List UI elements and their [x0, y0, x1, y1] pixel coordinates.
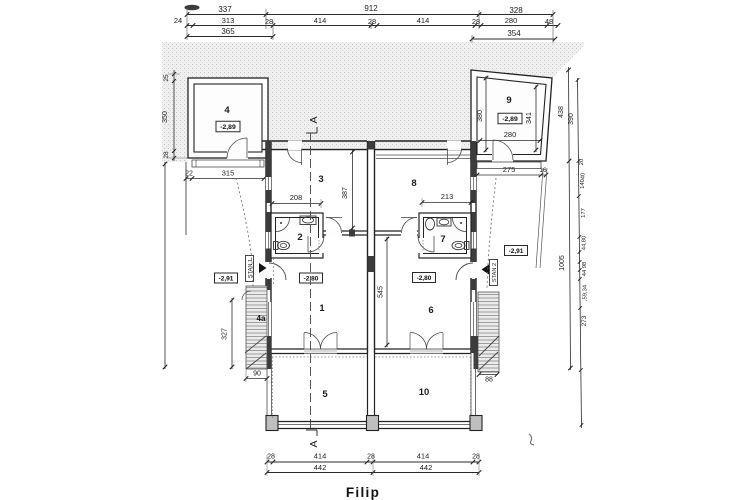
svg-text:365: 365 [221, 27, 235, 36]
svg-text:-2,80: -2,80 [304, 275, 319, 282]
svg-text:20: 20 [579, 159, 585, 165]
svg-text:387: 387 [342, 187, 349, 199]
svg-text:2: 2 [297, 232, 302, 243]
svg-text:,59,34: ,59,34 [583, 284, 589, 301]
svg-text:414: 414 [417, 16, 430, 25]
svg-text:438: 438 [558, 106, 565, 118]
svg-text:273: 273 [581, 315, 588, 326]
svg-text:28: 28 [368, 17, 376, 26]
svg-text:28: 28 [163, 151, 170, 159]
svg-text:25: 25 [163, 74, 170, 82]
svg-text:88: 88 [485, 377, 493, 384]
svg-text:3: 3 [318, 174, 323, 185]
svg-text:STAN 1: STAN 1 [248, 259, 254, 278]
svg-text:-2,91: -2,91 [509, 248, 524, 255]
svg-text:315: 315 [222, 169, 235, 178]
svg-text:328: 328 [509, 6, 523, 15]
svg-text:28: 28 [267, 454, 275, 461]
svg-text:90: 90 [253, 371, 261, 378]
svg-text:24: 24 [174, 16, 182, 25]
svg-text:44: 44 [582, 269, 588, 276]
svg-text:A: A [308, 440, 320, 447]
svg-text:STAN 2: STAN 2 [492, 263, 498, 282]
svg-text:442: 442 [314, 463, 327, 472]
svg-text:-2,80: -2,80 [417, 275, 432, 282]
svg-text:380: 380 [477, 110, 484, 122]
svg-text:442: 442 [420, 463, 433, 472]
svg-text:5: 5 [322, 389, 328, 400]
svg-text:Filip: Filip [346, 485, 380, 500]
svg-text:44,80: 44,80 [582, 236, 588, 251]
svg-text:48: 48 [545, 17, 553, 26]
svg-text:-2,89: -2,89 [502, 116, 518, 123]
svg-text:350: 350 [162, 111, 169, 123]
svg-text:545: 545 [378, 286, 385, 298]
svg-text:390: 390 [568, 113, 575, 125]
svg-text:98: 98 [582, 262, 588, 268]
svg-text:-2,91: -2,91 [219, 275, 234, 282]
svg-text:10: 10 [419, 387, 430, 398]
svg-text:6: 6 [428, 305, 433, 316]
svg-text:140: 140 [580, 179, 586, 189]
svg-text:8: 8 [411, 178, 416, 189]
svg-text:313: 313 [222, 16, 235, 25]
svg-text:1: 1 [319, 303, 325, 314]
svg-text:280: 280 [504, 130, 517, 139]
svg-text:213: 213 [441, 192, 454, 201]
svg-text:7: 7 [440, 234, 445, 245]
svg-text:280: 280 [505, 16, 518, 25]
svg-text:414: 414 [314, 452, 327, 461]
svg-text:275: 275 [503, 165, 516, 174]
svg-text:9: 9 [506, 95, 511, 106]
svg-text:327: 327 [222, 328, 229, 340]
svg-text:1005: 1005 [559, 255, 566, 271]
svg-text:40: 40 [581, 173, 587, 179]
svg-text:354: 354 [507, 29, 521, 38]
svg-text:4: 4 [224, 105, 230, 116]
svg-text:28: 28 [367, 454, 375, 461]
svg-text:414: 414 [314, 16, 327, 25]
svg-text:-2,89: -2,89 [220, 124, 236, 131]
svg-text:414: 414 [417, 452, 430, 461]
svg-text:337: 337 [218, 5, 232, 14]
svg-text:208: 208 [290, 193, 303, 202]
svg-text:912: 912 [364, 4, 378, 13]
svg-text:A: A [308, 116, 320, 123]
svg-text:177: 177 [581, 208, 587, 218]
svg-text:4a: 4a [257, 314, 266, 323]
svg-text:341: 341 [526, 112, 533, 124]
